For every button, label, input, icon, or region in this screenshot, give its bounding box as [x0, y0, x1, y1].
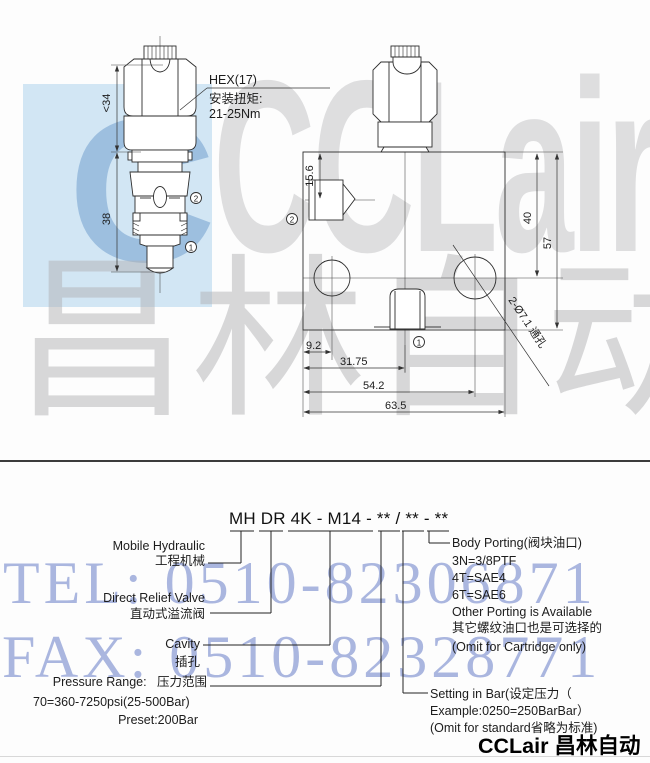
- model-code: MH DR 4K - M14 - ** / ** - **: [229, 511, 448, 526]
- dim-63-5: 63.5: [385, 400, 406, 412]
- legend-pressure-preset: Preset:200Bar: [0, 713, 198, 728]
- legend-body-porting-6t: 6T=SAE6: [452, 588, 506, 603]
- legend-mobile-hydraulic-en: Mobile Hydraulic: [0, 539, 205, 554]
- legend-setting-title: Setting in Bar(设定压力（: [430, 687, 572, 702]
- port1-callout: 1: [189, 243, 194, 252]
- through-holes-label: 2-Ø7.1 通孔: [506, 294, 550, 350]
- legend-direct-relief-en: Direct Relief Valve: [0, 591, 205, 606]
- dim-40: 40: [522, 212, 534, 224]
- port1-body-callout: 1: [417, 338, 422, 347]
- legend-body-porting-other-zh: 其它螺纹油口也是可选择的: [452, 621, 602, 636]
- torque-value: 21-25Nm: [209, 107, 260, 121]
- hex-label: HEX(17): [209, 73, 257, 87]
- dim-57: 57: [542, 237, 554, 249]
- dim-31-75: 31.75: [340, 356, 368, 368]
- valve-body-drawing: 2 1 2-Ø7.1 通孔 40 57 15.6: [287, 46, 564, 417]
- legend-pressure-values: 70=360-7250psi(25-500Bar): [33, 695, 190, 710]
- cartridge-valve-drawing: 2 1 <34 38 HEX(17) 安装扭矩: 21-25Nm: [101, 36, 330, 293]
- port2-callout: 2: [194, 194, 199, 203]
- legend-mobile-hydraulic-zh: 工程机械: [0, 554, 205, 569]
- legend-body-porting-title: Body Porting(阀块油口): [452, 536, 582, 551]
- footer-brand-logo: CCLair 昌林自动化: [478, 729, 650, 763]
- legend-direct-relief-zh: 直动式溢流阀: [0, 607, 205, 622]
- legend-body-porting-4t: 4T=SAE4: [452, 571, 506, 586]
- dim-15-6: 15.6: [304, 165, 316, 186]
- legend-body-porting-3n: 3N=3/8PTF: [452, 554, 516, 569]
- datasheet-page: C CCLair 昌林自动化 TEL: 0510-82306871 FAX: 0…: [0, 0, 650, 763]
- legend-cavity-en: Cavity: [0, 637, 200, 652]
- dim-54-2: 54.2: [363, 380, 384, 392]
- legend-setting-example: Example:0250=250BarBar）: [430, 704, 589, 719]
- legend-body-porting-omit: (Omit for Cartridge only): [452, 640, 586, 655]
- torque-label-zh: 安装扭矩:: [209, 91, 262, 106]
- legend-cavity-zh: 插孔: [0, 655, 200, 670]
- dim-cartridge-height: 38: [101, 213, 113, 225]
- dim-overall-height: <34: [101, 94, 113, 113]
- port2-body-callout: 2: [290, 215, 295, 224]
- legend-pressure-range: Pressure Range: 压力范围: [0, 675, 207, 690]
- technical-drawings: 2 1 <34 38 HEX(17) 安装扭矩: 21-25Nm: [0, 0, 650, 462]
- dim-9-2: 9.2: [306, 340, 321, 352]
- legend-body-porting-other: Other Porting is Available: [452, 605, 592, 620]
